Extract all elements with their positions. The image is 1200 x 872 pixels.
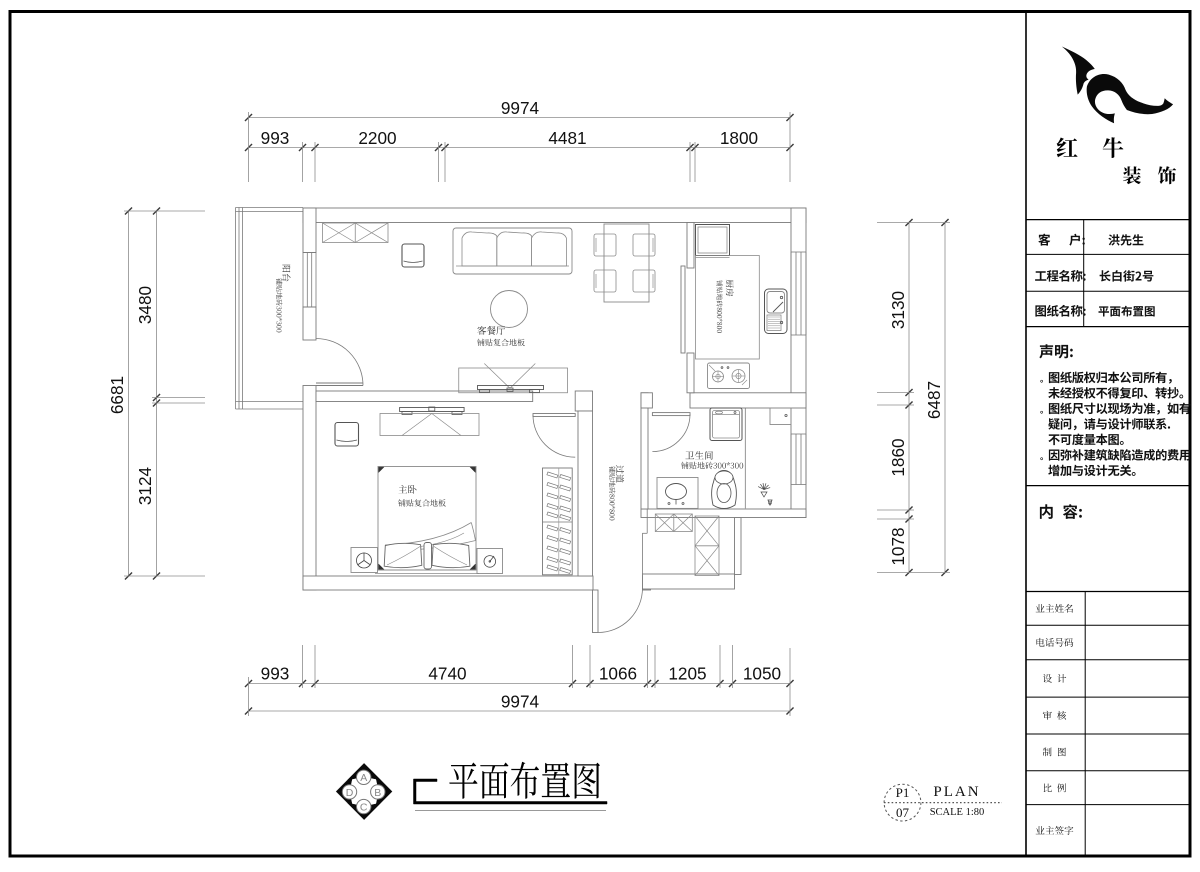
svg-text:3130: 3130 [888, 291, 908, 329]
svg-text:PLAN: PLAN [933, 784, 980, 800]
svg-text:6681: 6681 [107, 376, 127, 414]
svg-text:4481: 4481 [548, 128, 586, 148]
svg-text:A: A [360, 772, 367, 784]
svg-text:2200: 2200 [358, 128, 396, 148]
svg-text:P1: P1 [896, 785, 910, 800]
svg-text:6487: 6487 [924, 381, 944, 419]
svg-text:D: D [346, 787, 354, 799]
svg-text:07: 07 [896, 805, 910, 820]
svg-text:993: 993 [261, 128, 290, 148]
svg-text:B: B [374, 787, 381, 799]
svg-text:1860: 1860 [888, 438, 908, 476]
svg-text:993: 993 [261, 664, 290, 684]
svg-text:3480: 3480 [135, 286, 155, 324]
svg-text:1078: 1078 [888, 527, 908, 565]
svg-text:SCALE 1:80: SCALE 1:80 [930, 807, 985, 818]
svg-text:9974: 9974 [501, 692, 540, 712]
svg-text:1800: 1800 [720, 128, 758, 148]
svg-text:9974: 9974 [501, 98, 540, 118]
svg-text:1050: 1050 [743, 664, 781, 684]
svg-text:1066: 1066 [599, 664, 637, 684]
svg-text:4740: 4740 [428, 664, 466, 684]
svg-text:C: C [360, 802, 368, 814]
svg-text:3124: 3124 [135, 466, 155, 505]
svg-text:1205: 1205 [668, 664, 706, 684]
